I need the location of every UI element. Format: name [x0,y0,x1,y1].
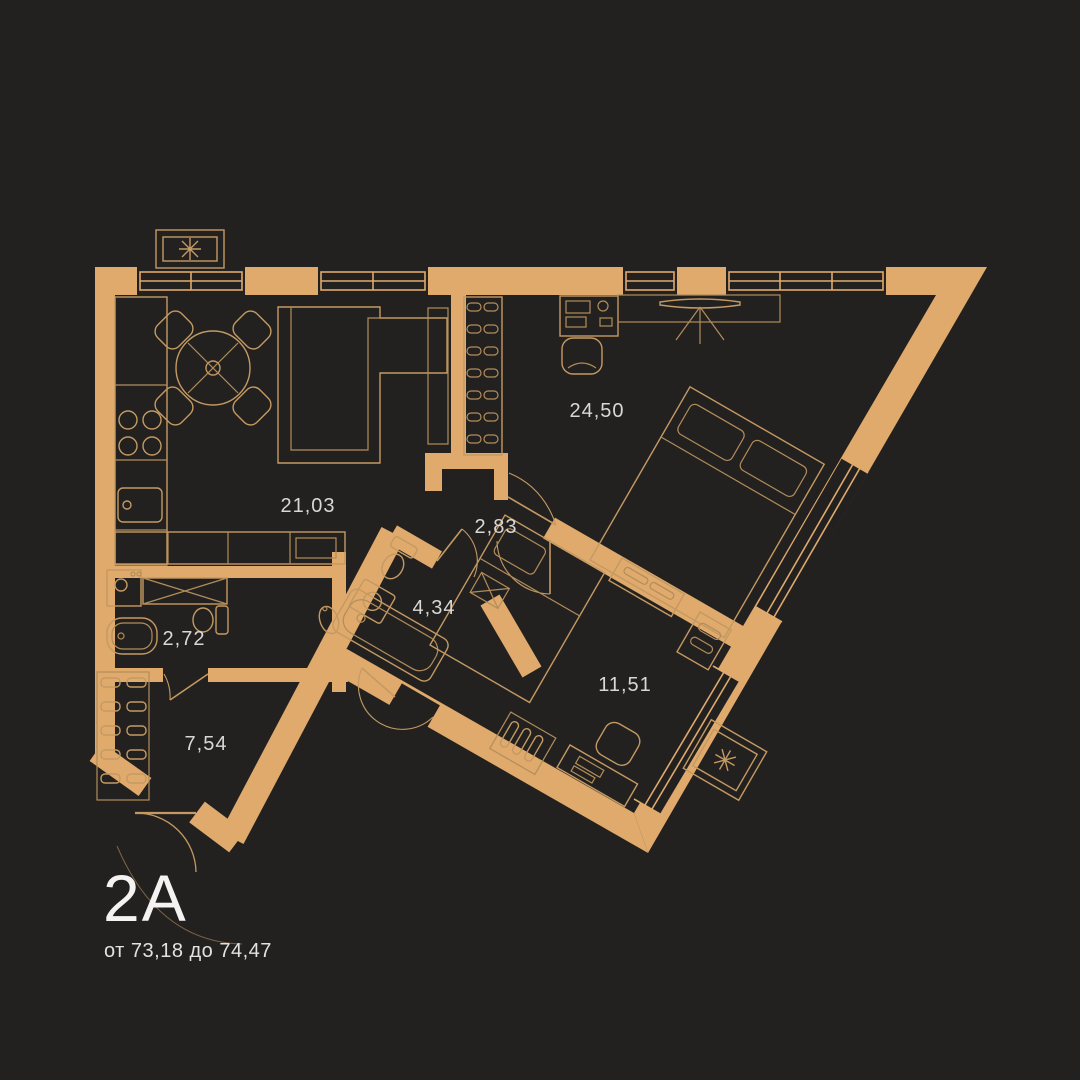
kitchen-counter [115,297,345,565]
dining-table [151,307,274,428]
vent-shaft [143,578,227,604]
chair [229,383,274,428]
room-label-kitchen-living: 21,03 [280,495,335,517]
room-label-entry-hall: 7,54 [185,733,228,755]
wall-wc-bottom-left [95,668,163,682]
wall-wc-bottom-right [208,668,348,682]
wall-hall-jamb [494,468,508,500]
chair [151,383,196,428]
chair [151,307,196,352]
wardrobe-main [464,297,502,455]
tv-stand [618,295,780,344]
window-1 [137,267,245,295]
ac-asterisk-icon-bottom [710,745,740,775]
wall-left [95,267,115,756]
room-label-bedroom-main: 24,50 [569,400,624,422]
wc-door [164,674,208,700]
room-label-wc: 2,72 [163,628,206,650]
wc-fixtures [107,570,342,654]
balcony-top [156,230,224,268]
sofa [278,307,447,463]
ac-asterisk-icon-top [179,238,201,260]
plan-area-range: от 73,18 до 74,47 [104,940,272,962]
room-label-bedroom-second: 11,51 [598,674,652,696]
tv-shelf-living [428,308,448,444]
floor-plan-svg: 21,03 24,50 2,83 4,34 2,72 7,54 11,51 2А… [0,0,1080,1080]
wall-bathroom-bedroom [490,600,532,672]
kitchen-counter-bottom [115,532,345,564]
room-label-bathroom: 4,34 [413,597,456,619]
wall-entry-cut-left [96,752,145,787]
kitchen-sink [118,488,162,522]
floor-plan-page: 21,03 24,50 2,83 4,34 2,72 7,54 11,51 2А… [0,0,1080,1080]
window-2 [318,267,428,295]
wall-hall-corner [425,453,442,491]
window-3 [623,267,677,295]
desk-chair-main [562,338,602,374]
window-right-upper [756,458,868,622]
bathroom-door [437,529,477,577]
chair [229,307,274,352]
window-4 [726,267,886,295]
desk-main [560,296,618,336]
wall-wc-top [106,566,346,578]
stove [119,411,161,455]
window-layer [137,267,886,814]
room-label-hall-inner: 2,83 [475,516,518,538]
wall-bedrooms-partition [549,528,740,638]
plan-code: 2А [103,861,188,935]
title-block: 2А от 73,18 до 74,47 [103,861,272,962]
